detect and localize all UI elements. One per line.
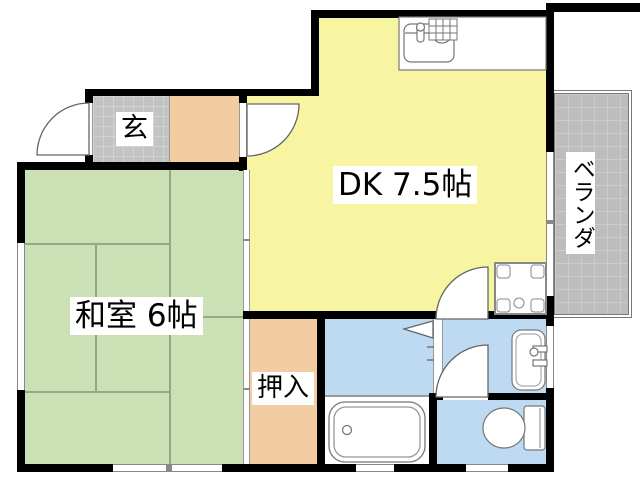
wall: [429, 393, 437, 472]
room-toilet: [437, 400, 546, 464]
wall: [222, 464, 356, 472]
entrance-hall-floor: [170, 96, 239, 162]
fusuma-handle: [243, 239, 250, 241]
entrance-step-line: [169, 96, 170, 162]
bathroom-partition: [433, 319, 443, 393]
wall: [546, 10, 554, 152]
wall: [17, 170, 25, 243]
fusuma-handle: [243, 388, 250, 390]
entrance-label: 玄: [116, 112, 153, 146]
room-bathroom-upper: [325, 319, 433, 396]
veranda-window: [546, 152, 554, 296]
wall: [317, 311, 325, 472]
tatami-line: [25, 391, 171, 393]
window: [356, 464, 394, 472]
wall: [17, 162, 247, 170]
wall: [85, 89, 93, 103]
floor-plan: 玄 DK 7.5帖 和室 6帖 押入 ベランダ: [0, 0, 640, 488]
room-bathtub-floor: [325, 397, 433, 464]
room-dk-upper: [315, 12, 546, 96]
window: [17, 315, 25, 390]
wall: [243, 311, 438, 319]
window-handle: [546, 220, 554, 224]
window: [546, 326, 554, 388]
kitchen-door-opening: [239, 103, 247, 157]
wall: [429, 393, 443, 400]
room-washroom: [443, 319, 546, 393]
wall: [85, 89, 319, 96]
wall: [546, 388, 554, 472]
fusuma-door: [243, 319, 250, 464]
wall: [488, 311, 554, 319]
wall: [17, 464, 113, 472]
window: [17, 243, 25, 315]
window: [466, 464, 508, 472]
closet-label: 押入: [252, 372, 314, 405]
japanese-room-label: 和室 6帖: [70, 297, 203, 335]
wall: [17, 390, 25, 472]
veranda-label: ベランダ: [566, 152, 595, 254]
wall: [508, 464, 554, 472]
wall: [488, 393, 554, 400]
bathtub-area-divider: [325, 395, 433, 397]
wall: [311, 10, 319, 96]
wall-neighbor: [546, 3, 640, 12]
wall: [313, 10, 554, 18]
tatami-line: [25, 243, 171, 245]
entrance-door-opening: [85, 103, 93, 155]
entrance-door-arc: [37, 103, 89, 155]
window-handle: [166, 465, 172, 471]
dk-label: DK 7.5帖: [333, 166, 477, 204]
wall: [239, 89, 247, 103]
